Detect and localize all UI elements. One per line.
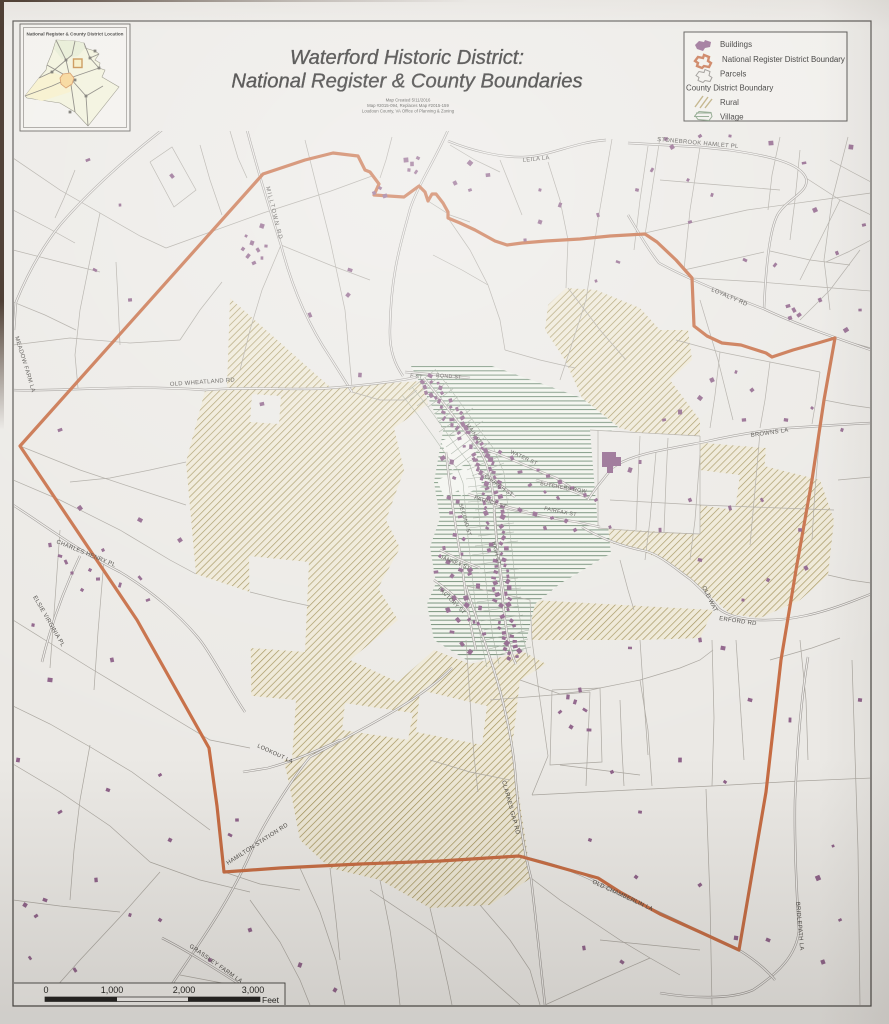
svg-text:Map Created 5/11/2016: Map Created 5/11/2016 — [386, 98, 431, 103]
svg-text:Rural: Rural — [720, 98, 739, 107]
svg-text:0: 0 — [43, 985, 48, 995]
svg-text:Loudoun County, VA Office of P: Loudoun County, VA Office of Planning & … — [362, 109, 455, 114]
svg-text:3,000: 3,000 — [242, 985, 265, 995]
svg-text:Waterford Historic District:: Waterford Historic District: — [290, 47, 524, 69]
svg-text:National Register & County Dis: National Register & County District Loca… — [27, 32, 124, 37]
svg-text:Map #2015-094, Replaces Map #2: Map #2015-094, Replaces Map #2015-159 — [367, 103, 449, 108]
svg-text:Feet: Feet — [262, 995, 280, 1005]
svg-text:1,000: 1,000 — [101, 985, 124, 995]
svg-text:Buildings: Buildings — [720, 40, 752, 49]
svg-text:National Register District Bou: National Register District Boundary — [722, 55, 845, 64]
svg-text:2,000: 2,000 — [173, 985, 196, 995]
svg-text:Village: Village — [720, 113, 744, 122]
svg-text:County District Boundary: County District Boundary — [686, 84, 773, 93]
svg-text:National Register & County Bou: National Register & County Boundaries — [231, 71, 582, 93]
svg-text:Parcels: Parcels — [720, 70, 746, 79]
